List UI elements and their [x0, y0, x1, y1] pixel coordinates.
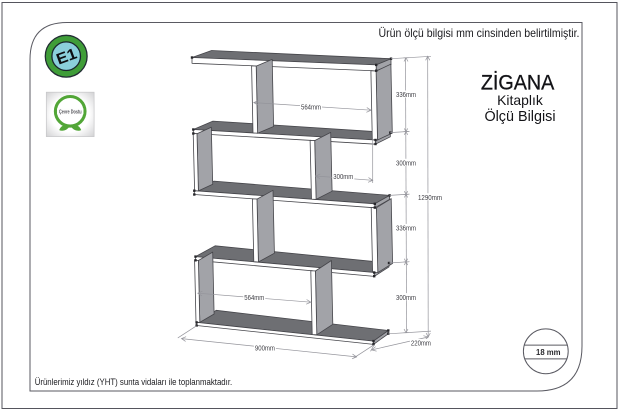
- svg-text:Ürünlerimiz yıldız (YHT) sunta: Ürünlerimiz yıldız (YHT) sunta vidaları …: [35, 377, 233, 388]
- svg-text:Kitaplık: Kitaplık: [497, 92, 544, 108]
- svg-text:336mm: 336mm: [396, 226, 416, 233]
- svg-text:1290mm: 1290mm: [418, 195, 442, 202]
- svg-text:Ürün ölçü bilgisi mm cinsinden: Ürün ölçü bilgisi mm cinsinden belirtilm…: [379, 26, 580, 40]
- svg-text:Ölçü Bilgisi: Ölçü Bilgisi: [484, 107, 555, 125]
- svg-text:900mm: 900mm: [255, 345, 275, 352]
- svg-text:564mm: 564mm: [301, 104, 321, 111]
- svg-text:Çevre Dostu: Çevre Dostu: [59, 109, 82, 115]
- svg-text:300mm: 300mm: [396, 161, 416, 168]
- svg-text:300mm: 300mm: [396, 295, 416, 302]
- svg-text:336mm: 336mm: [396, 92, 416, 99]
- svg-text:18 mm: 18 mm: [536, 347, 561, 357]
- svg-text:564mm: 564mm: [244, 295, 264, 302]
- svg-text:300mm: 300mm: [333, 174, 353, 181]
- svg-text:220mm: 220mm: [411, 341, 431, 348]
